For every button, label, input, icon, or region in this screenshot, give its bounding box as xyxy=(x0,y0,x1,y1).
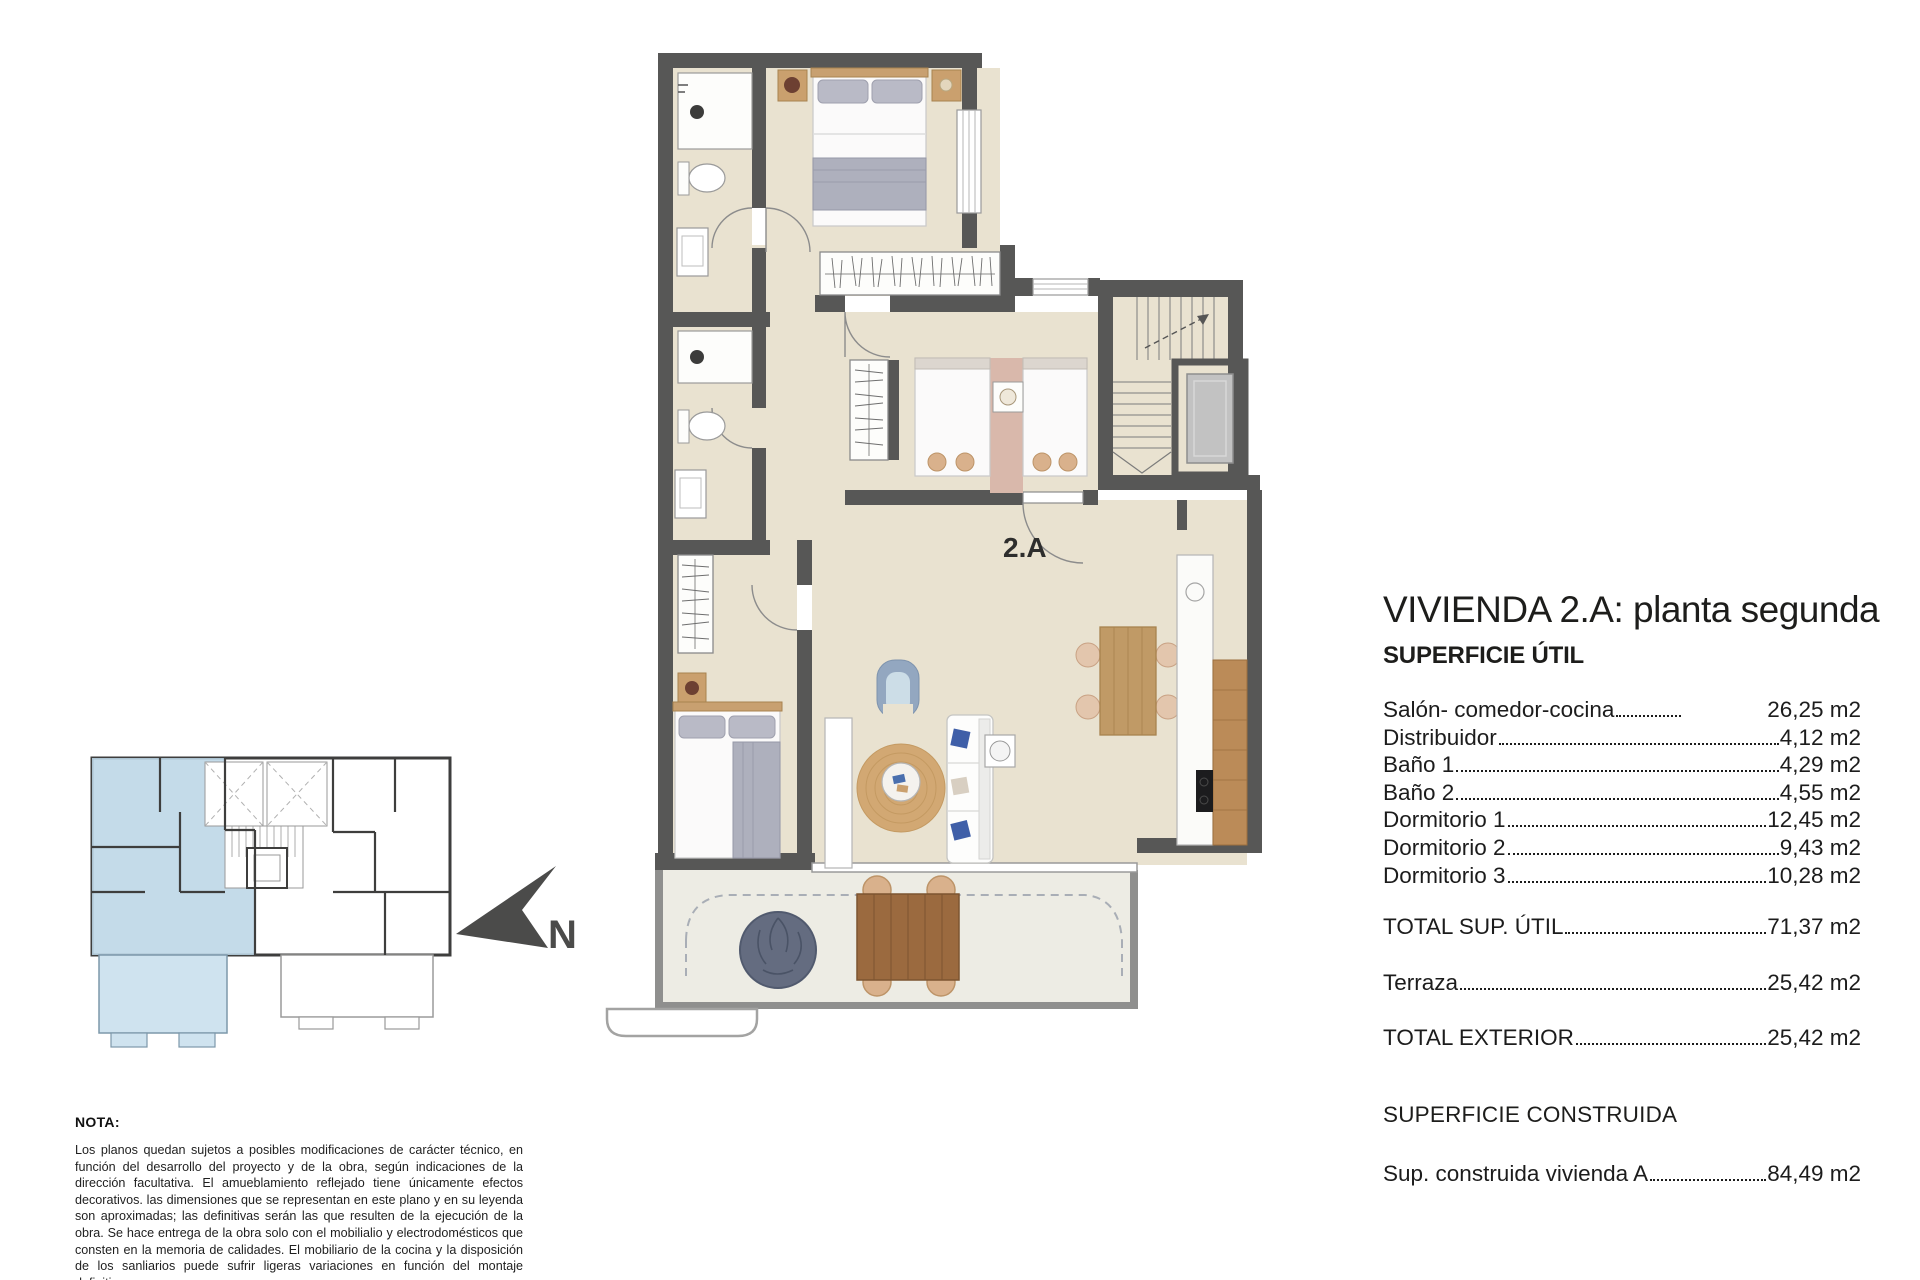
note-block: NOTA: Los planos quedan sujetos a posibl… xyxy=(75,1114,523,1280)
construida-row: Sup. construida vivienda A84,49 m2 xyxy=(1383,1160,1861,1188)
shower1 xyxy=(678,73,752,149)
living-glass-front xyxy=(812,863,1137,872)
shower1-drain xyxy=(690,105,704,119)
unit-terrace xyxy=(99,955,227,1033)
row-label: Dormitorio 1 xyxy=(1383,806,1506,834)
row-label: TOTAL EXTERIOR xyxy=(1383,1024,1574,1052)
total-exterior-row: TOTAL EXTERIOR25,42 m2 xyxy=(1383,1024,1861,1052)
curved-bay xyxy=(607,1009,757,1036)
side-appliance xyxy=(985,735,1015,767)
row-label: Baño 1 xyxy=(1383,751,1454,779)
table-row: Salón- comedor-cocina26,25 m2 xyxy=(1383,696,1861,724)
north-arrow: N xyxy=(448,848,598,958)
total-util-row: TOTAL SUP. ÚTIL71,37 m2 xyxy=(1383,913,1861,941)
table-row: Baño 14,29 m2 xyxy=(1383,751,1861,779)
table-row: Dormitorio 112,45 m2 xyxy=(1383,806,1861,834)
section-superficie-construida: SUPERFICIE CONSTRUIDA xyxy=(1383,1102,1861,1128)
row-label: Terraza xyxy=(1383,969,1458,997)
row-value: 10,28 m2 xyxy=(1767,862,1861,890)
shower2 xyxy=(678,331,752,383)
note-heading: NOTA: xyxy=(75,1114,523,1130)
row-label: Salón- comedor-cocina xyxy=(1383,696,1614,724)
key-plan xyxy=(85,752,465,1067)
table-row: Baño 24,55 m2 xyxy=(1383,779,1861,807)
row-value: 4,29 m2 xyxy=(1780,751,1861,779)
row-value: 9,43 m2 xyxy=(1780,834,1861,862)
note-body: Los planos quedan sujetos a posibles mod… xyxy=(75,1142,523,1280)
section-superficie-util: SUPERFICIE ÚTIL xyxy=(1383,642,1861,670)
dot-leader xyxy=(1456,770,1778,772)
row-value: 12,45 m2 xyxy=(1767,806,1861,834)
row-value: 84,49 m2 xyxy=(1767,1160,1861,1188)
patio-window xyxy=(1033,279,1088,295)
row-value: 26,25 m2 xyxy=(1767,696,1861,724)
row-label: TOTAL SUP. ÚTIL xyxy=(1383,913,1563,941)
row-value: 4,12 m2 xyxy=(1780,724,1861,752)
row-label: Dormitorio 2 xyxy=(1383,834,1506,862)
armchair xyxy=(877,660,919,720)
table-row: Distribuidor4,12 m2 xyxy=(1383,724,1861,752)
cooktop xyxy=(1196,770,1213,812)
wardrobe-main xyxy=(820,252,1000,295)
runner-rug xyxy=(990,358,1023,493)
twin-bed-left xyxy=(915,358,990,476)
row-label: Sup. construida vivienda A xyxy=(1383,1160,1648,1188)
dot-leader xyxy=(1576,1043,1766,1045)
dot-leader xyxy=(1460,988,1766,990)
dot-leader xyxy=(1565,932,1766,934)
kitchen-counter-wood xyxy=(1213,660,1247,845)
neighbor-terrace xyxy=(281,955,433,1017)
util-rows: Salón- comedor-cocina26,25 m2 Distribuid… xyxy=(1383,696,1861,889)
row-value: 4,55 m2 xyxy=(1780,779,1861,807)
blue-pillow-1 xyxy=(950,729,970,749)
hall-closet xyxy=(850,360,888,460)
master-bed xyxy=(673,702,782,858)
row-value: 25,42 m2 xyxy=(1767,969,1861,997)
dot-leader xyxy=(1650,1179,1766,1181)
area-panel: VIVIENDA 2.A: planta segunda SUPERFICIE … xyxy=(1383,588,1861,1188)
dot-leader xyxy=(1456,798,1778,800)
bedroom1-window xyxy=(957,110,981,213)
dot-leader xyxy=(1616,715,1681,717)
row-value: 25,42 m2 xyxy=(1767,1024,1861,1052)
shower2-drain xyxy=(690,350,704,364)
sink2 xyxy=(675,470,706,518)
bedroom2 xyxy=(915,358,1087,493)
row-label: Distribuidor xyxy=(1383,724,1497,752)
plant-master xyxy=(685,681,699,695)
main-floorplan-drawing: 2.A xyxy=(545,30,1275,1045)
bean-bag xyxy=(740,912,816,988)
north-arrow-glyph xyxy=(456,866,556,948)
unit-label: 2.A xyxy=(1003,532,1047,563)
dot-leader xyxy=(1508,853,1779,855)
core-stairs xyxy=(225,826,303,888)
bedside-table-clock xyxy=(993,382,1023,412)
dot-leader xyxy=(1508,881,1767,883)
table-row: Dormitorio 29,43 m2 xyxy=(1383,834,1861,862)
table-row: Dormitorio 310,28 m2 xyxy=(1383,862,1861,890)
main-floorplan: 2.A xyxy=(545,30,1275,1045)
wardrobe-master xyxy=(678,555,713,653)
plant xyxy=(784,77,800,93)
floorplan-page: 2.A xyxy=(0,0,1920,1280)
dot-leader xyxy=(1499,743,1779,745)
page-title: VIVIENDA 2.A: planta segunda xyxy=(1383,588,1861,632)
double-bed xyxy=(811,68,928,226)
key-elevator xyxy=(247,848,287,888)
twin-bed-right xyxy=(1023,358,1087,476)
terraza-row: Terraza25,42 m2 xyxy=(1383,969,1861,997)
key-plan-drawing xyxy=(85,752,465,1067)
row-value: 71,37 m2 xyxy=(1767,913,1861,941)
coffee-table xyxy=(882,763,920,801)
row-label: Baño 2 xyxy=(1383,779,1454,807)
tv-console xyxy=(825,718,852,868)
row-label: Dormitorio 3 xyxy=(1383,862,1506,890)
tan-pillow xyxy=(951,777,970,796)
north-label: N xyxy=(548,913,577,957)
dot-leader xyxy=(1508,825,1767,827)
sink1 xyxy=(677,228,708,276)
entry-door-leaf xyxy=(1023,492,1083,503)
